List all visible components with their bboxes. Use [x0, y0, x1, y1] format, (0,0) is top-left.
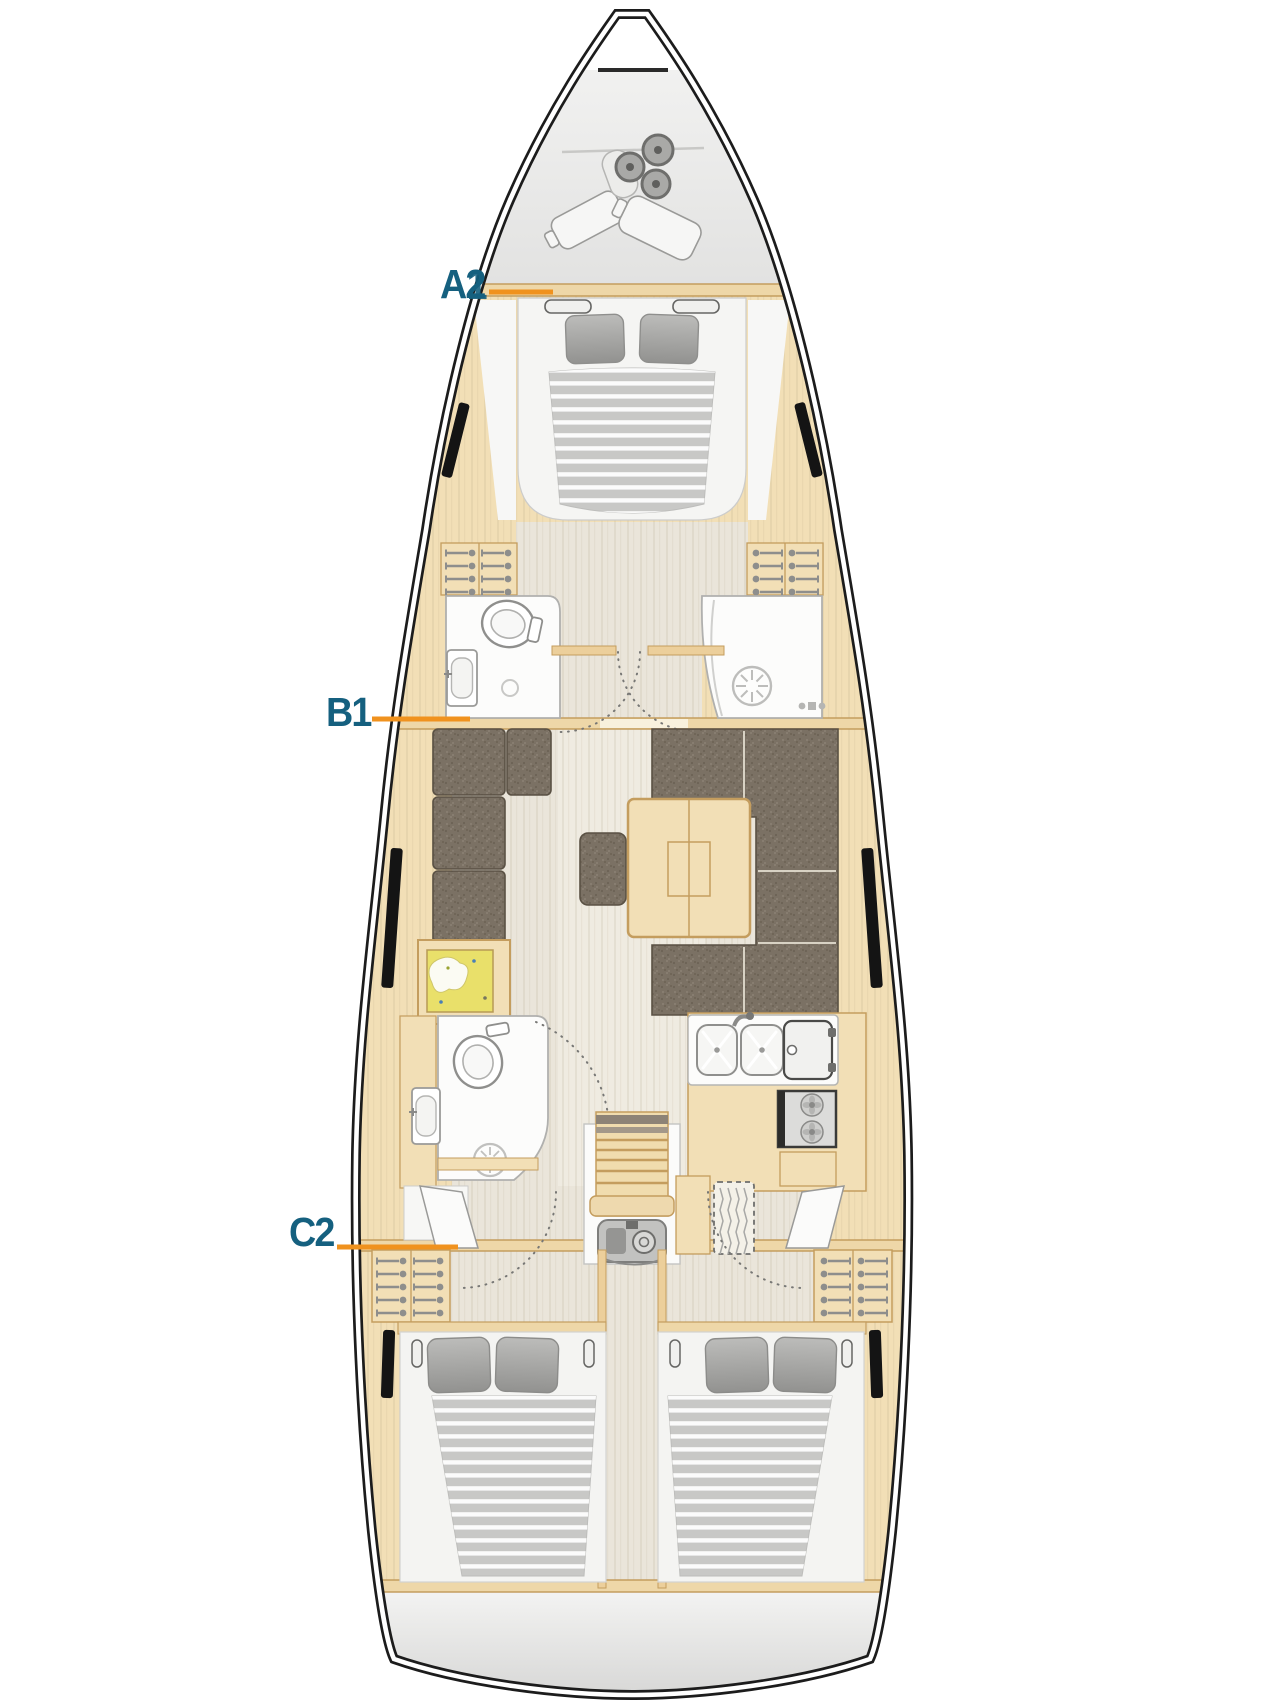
companionway-stairs [590, 1112, 674, 1216]
forward-wardrobe-port [441, 543, 517, 596]
pillow [773, 1337, 837, 1393]
aft-cabin-starboard [658, 1332, 864, 1582]
shower-fan-symbol [733, 667, 771, 705]
cabin-label-b1: B1 [326, 692, 371, 733]
aft-wardrobe-starboard [814, 1250, 892, 1322]
shower-starboard-forward [702, 596, 826, 718]
fridge [784, 1021, 836, 1079]
shower-fitting-icon [799, 702, 826, 710]
cabin-label-a2-letter: A [440, 261, 465, 307]
cabin-label-c2: C2 [289, 1212, 334, 1253]
pillow [427, 1337, 491, 1393]
companionway-threshold [600, 719, 688, 728]
yacht-floorplan: A21 B1 C2 [0, 0, 1280, 1707]
pillow [495, 1337, 559, 1393]
pillow [565, 314, 625, 364]
stern-locker [360, 1592, 920, 1704]
cabin-label-a2: A21 [440, 264, 485, 305]
pillow [705, 1337, 769, 1393]
washbasin [444, 650, 477, 706]
forward-cabin [474, 298, 790, 520]
head-port-forward [444, 596, 560, 718]
washbasin [409, 1088, 440, 1144]
forward-wardrobe-starboard [747, 543, 823, 596]
ottoman [580, 833, 626, 905]
salon-table [628, 799, 750, 937]
stove [778, 1091, 836, 1147]
aft-wardrobe-port [372, 1250, 450, 1322]
floorplan-drawing [0, 0, 1280, 1707]
aft-cabin-port [400, 1332, 606, 1582]
galley [688, 1012, 866, 1191]
cabin-label-a1-overlay: 1 [467, 265, 486, 306]
chart-table [418, 940, 510, 1024]
engine [598, 1220, 666, 1265]
pillow [639, 314, 699, 364]
interior [350, 70, 920, 1704]
liferaft [714, 1182, 754, 1254]
